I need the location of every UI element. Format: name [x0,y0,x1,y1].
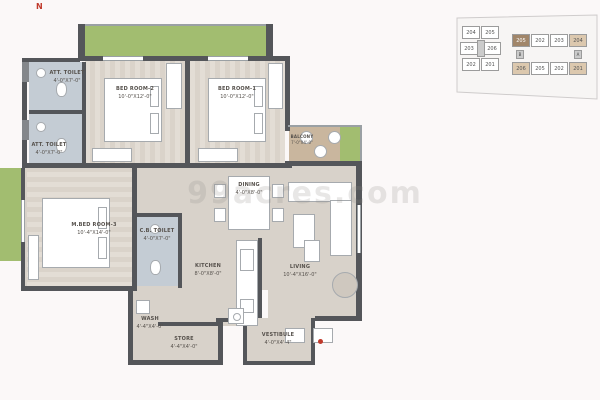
pillow-icon [98,237,107,259]
watermark: 99acres.com [178,176,432,211]
room-dims: 7'-0"X4'-0" [288,140,316,146]
dresser-icon [92,148,132,162]
keyplan-unit: 206 [483,42,501,55]
duct-shaft [22,120,29,140]
wall [218,322,223,364]
wall [258,238,262,318]
room-label-wash: WASH 4'-4"X4'-0" [132,316,168,331]
wall [315,316,362,321]
room-name: KITCHEN [186,263,230,271]
pillow-icon [254,113,263,134]
dresser-icon [198,148,238,162]
keyplan-unit: 203 [460,42,478,55]
green-area-right [340,127,361,165]
room-dims: 10'-4"X16'-0" [272,272,328,280]
room-dims: 4'-0"X7'-0" [44,78,90,86]
keyplan-unit: 202 [550,62,568,75]
north-indicator: N [36,2,43,11]
room-label-balcony: BALCONY 7'-0"X4'-0" [288,134,316,146]
keyplan-unit: 202 [531,34,549,47]
room-label-store: STORE 4'-4"X4'-0" [164,336,204,351]
keyplan-unit: 204 [569,34,587,47]
wall [285,56,290,131]
room-dims: 4'-0"X4'-4" [252,340,304,348]
wall [21,286,137,291]
washing-machine-icon [136,300,150,314]
room-dims: 4'-4"X4'-0" [132,324,168,332]
washbasin-icon [228,308,244,324]
stove-icon [240,249,254,271]
wall [22,163,292,168]
wall [285,161,362,166]
keyplan-unit: 202 [462,58,480,71]
keyplan-unit: 203 [550,34,568,47]
entry-marker [318,339,323,344]
balcony-edge [288,125,362,127]
room-label-kitchen: KITCHEN 8'-0"X8'-0" [186,263,230,278]
wc-icon [150,260,161,275]
basin-bowl-icon [233,313,241,321]
room-name: BED ROOM-1 [202,86,272,94]
room-name: STORE [164,336,204,344]
room-name: M.BED ROOM-3 [54,222,134,230]
keyplan-unit: 206 [512,62,530,75]
room-name: C.B. TOILET [135,228,179,236]
keyplan-inset: 204 205 203 206 202 201 205 202 203 204 … [452,8,600,103]
room-label-att-toilet-top: ATT. TOILET 4'-0"X7'-0" [44,70,90,85]
keyplan-core: B [516,50,524,59]
wall [134,213,182,217]
floorplan-canvas: N [0,0,600,400]
green-area-top [84,26,266,58]
room-dims: 4'-0"X7'-0" [135,236,179,244]
pillow-icon [150,113,159,134]
window [208,56,248,61]
chair-icon [313,328,333,343]
keyplan-unit: 205 [531,62,549,75]
planter-icon [328,131,341,144]
room-label-att-toilet-bottom: ATT. TOILET 4'-0"X7'-0" [26,142,72,157]
washbasin-icon [36,122,46,132]
wall [243,361,315,365]
room-label-bedroom2: BED ROOM-2 10'-0"X12'-0" [100,86,170,101]
room-name: ATT. TOILET [26,142,72,150]
room-name: ATT. TOILET [44,70,90,78]
keyplan-unit: 201 [481,58,499,71]
side-table-icon [304,240,320,262]
wall [185,58,190,166]
room-name: VESTIBULE [252,332,304,340]
room-label-cb-toilet: C.B. TOILET 4'-0"X7'-0" [135,228,179,243]
room-label-living: LIVING 10'-4"X16'-0" [272,264,328,279]
room-dims: 10'-0"X12'-0" [202,94,272,102]
wall [29,110,85,114]
room-label-vestibule: VESTIBULE 4'-0"X4'-4" [252,332,304,347]
window [103,56,143,61]
room-name: BED ROOM-2 [100,86,170,94]
room-dims: 4'-4"X4'-0" [164,344,204,352]
wall [266,24,273,60]
room-name: WASH [132,316,168,324]
window [357,205,361,253]
wall [25,58,80,62]
window [21,200,25,242]
keyplan-core [477,40,485,57]
wall [78,24,85,60]
keyplan-unit-highlight: 205 [512,34,530,47]
room-name: LIVING [272,264,328,272]
wall [128,360,223,365]
green-area-left [0,168,21,261]
wardrobe-icon [28,235,39,280]
room-dims: 8'-0"X8'-0" [186,271,230,279]
duct-shaft [22,62,29,82]
keyplan-unit: 201 [569,62,587,75]
room-dims: 10'-0"X12'-0" [100,94,170,102]
wall [84,24,266,26]
keyplan-core: A [574,50,582,59]
room-label-mbedroom3: M.BED ROOM-3 10'-4"X14'-0" [54,222,134,237]
room-dims: 10'-4"X14'-0" [54,230,134,238]
planter-icon [314,145,327,158]
room-label-bedroom1: BED ROOM-1 10'-0"X12'-0" [202,86,272,101]
swing-chair-icon [332,272,358,298]
wall [178,213,182,288]
room-dims: 4'-0"X7'-0" [26,150,72,158]
keyplan-unit: 204 [462,26,480,39]
keyplan-unit: 205 [481,26,499,39]
exterior-cut [220,326,244,362]
